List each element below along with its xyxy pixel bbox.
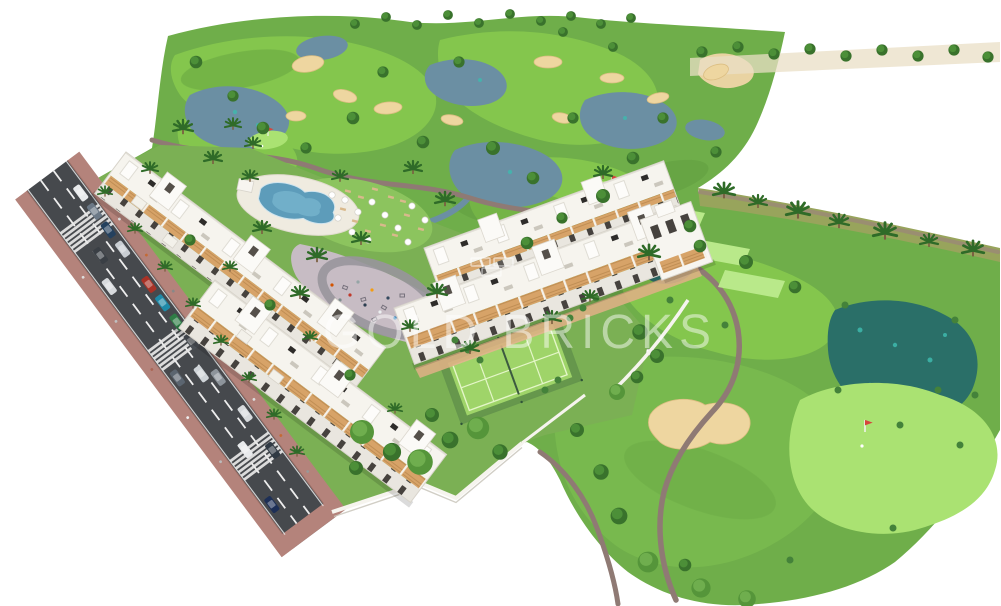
umbrella bbox=[405, 239, 411, 245]
umbrella bbox=[329, 192, 335, 198]
umbrella bbox=[369, 199, 375, 205]
aerial-render: GOLD BRICKS bbox=[0, 0, 1001, 606]
sand-bunker bbox=[534, 56, 562, 68]
umbrella bbox=[382, 212, 388, 218]
umbrella bbox=[395, 225, 401, 231]
sand-bunker bbox=[286, 111, 306, 121]
umbrella bbox=[335, 215, 341, 221]
sand-bunker bbox=[600, 73, 624, 83]
render-canvas: GOLD BRICKS bbox=[0, 0, 1001, 606]
umbrella bbox=[342, 197, 348, 203]
golfer bbox=[860, 444, 863, 447]
umbrella bbox=[422, 217, 428, 223]
umbrella bbox=[349, 229, 355, 235]
umbrella bbox=[355, 209, 361, 215]
watermark-text: GOLD BRICKS bbox=[323, 306, 717, 359]
umbrella bbox=[409, 203, 415, 209]
